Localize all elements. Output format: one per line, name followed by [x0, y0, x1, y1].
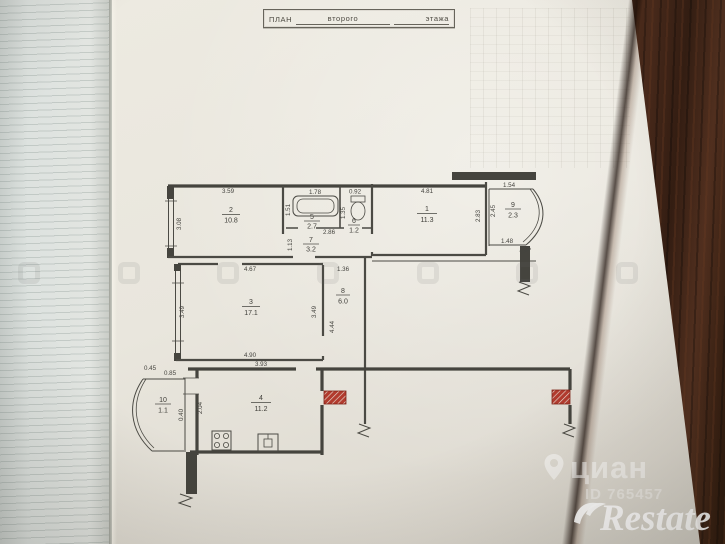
room-label-4: 4 11.2: [251, 395, 271, 413]
room-area: 2.3: [508, 213, 518, 220]
dim-label: 1.36: [337, 266, 350, 273]
room-number: 7: [309, 237, 313, 244]
dim-label: 2.86: [323, 229, 336, 236]
room-area: 17.1: [244, 310, 258, 317]
dim-label: 0.45: [144, 365, 157, 372]
wall-break-symbol: [358, 424, 370, 437]
red-door-mark: [324, 391, 346, 404]
dim-label: 1.35: [340, 206, 347, 219]
room-number: 4: [259, 395, 263, 402]
dim-label: 1.13: [287, 238, 294, 251]
room-number: 1: [425, 206, 429, 213]
dim-label: 4.81: [421, 188, 434, 195]
wall-break-symbol: [518, 282, 530, 295]
room-number: 10: [159, 397, 167, 404]
dim-label: 4.67: [244, 266, 257, 273]
room-label-6: 6 1.2: [348, 218, 360, 235]
room-label-7: 7 3.2: [303, 237, 319, 254]
bathtub-icon: [293, 196, 338, 216]
balcony-9-outline: [489, 189, 543, 295]
dim-label: 3.49: [311, 305, 318, 318]
room-area: 11.2: [254, 406, 267, 413]
room-number: 2: [229, 207, 233, 214]
toilet-icon: [351, 196, 365, 220]
stove-icon: [212, 431, 231, 450]
room-number: 5: [310, 214, 314, 221]
room-number: 6: [352, 218, 356, 225]
dim-label: 0.85: [164, 370, 177, 377]
dim-label: 3.93: [255, 361, 268, 368]
dim-label: 1.51: [285, 203, 292, 216]
room-number: 9: [511, 202, 515, 209]
room-label-10: 10 1.1: [155, 397, 171, 415]
photo-of-floor-plan-document: ПЛАН второго этажа: [0, 0, 725, 544]
room-area: 11.3: [420, 217, 433, 224]
dim-label: 3.59: [222, 188, 235, 195]
room-label-8: 8 6.0: [336, 288, 350, 306]
dim-label: 1.78: [309, 189, 322, 196]
dim-label: 2.83: [475, 209, 482, 222]
dim-label: 1.54: [503, 182, 516, 189]
room-area: 3.2: [306, 247, 316, 254]
room-number: 3: [249, 299, 253, 306]
walls-lower-block: [133, 369, 575, 507]
dim-label: 2.04: [197, 401, 204, 414]
dim-label: 1.48: [501, 238, 514, 245]
wall-break-symbol: [179, 494, 192, 507]
dim-label: 0.92: [349, 189, 362, 196]
dim-label: 3.49: [179, 305, 186, 318]
dim-label: 2.45: [490, 204, 497, 217]
room-area: 2.7: [307, 224, 317, 231]
room-area: 1.1: [158, 408, 168, 415]
dim-label: 3.08: [176, 217, 183, 230]
room-area: 10.8: [224, 218, 238, 225]
room-label-1: 1 11.3: [417, 206, 437, 224]
sink-icon: [258, 434, 278, 451]
room-label-2: 2 10.8: [222, 207, 240, 225]
room-label-3: 3 17.1: [242, 299, 260, 317]
room-number: 8: [341, 288, 345, 295]
room-label-9: 9 2.3: [505, 202, 521, 220]
dim-label: 0.40: [178, 408, 185, 421]
outer-wall-bar: [452, 172, 536, 180]
dim-label: 4.44: [329, 320, 336, 333]
dim-label: 4.90: [244, 352, 257, 359]
room-area: 1.2: [349, 228, 359, 235]
room-area: 6.0: [338, 299, 348, 306]
